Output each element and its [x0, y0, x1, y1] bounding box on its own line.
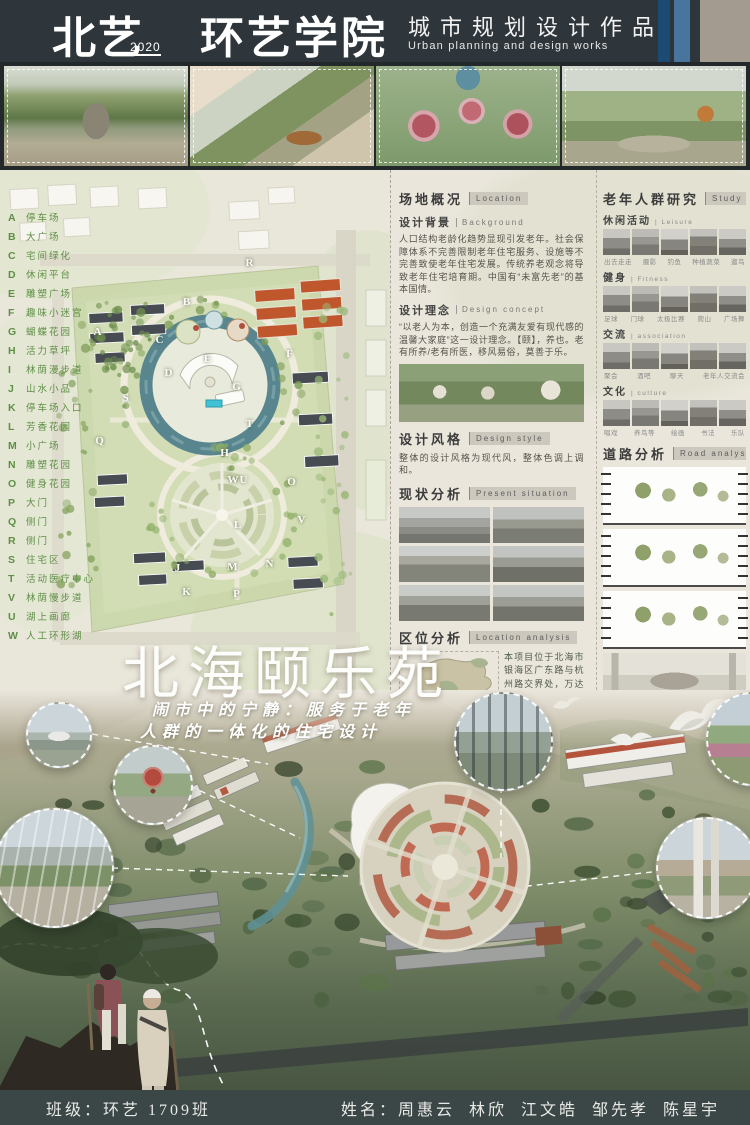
research-caption: 种植蔬菜	[692, 256, 720, 266]
legend-letter: S	[8, 554, 26, 566]
poster: 北艺 2020 环艺学院 城市规划设计作品 Urban planning and…	[0, 0, 750, 1125]
research-photo	[603, 229, 630, 255]
research-photo	[632, 229, 659, 255]
top-render-strip	[0, 62, 750, 170]
right-column: 老年人群研究 Study on the elderly 休闲活动| Leisur…	[596, 170, 748, 690]
present-photo	[493, 507, 584, 543]
legend-letter: U	[8, 611, 26, 623]
legend-item: T活动医疗中心	[8, 571, 95, 590]
project-subtitle-line2: 人群的一体化的住宅设计	[140, 718, 382, 742]
research-caption: 太极比赛	[657, 313, 685, 323]
research-photo	[690, 400, 717, 426]
research-caption: 门球	[631, 313, 645, 323]
legend-letter: W	[8, 630, 26, 642]
dimension-ticks	[601, 597, 611, 641]
research-photo-row	[603, 229, 746, 255]
research-category-header: 交流| association	[603, 326, 746, 341]
concept-text: “以老人为本，创造一个充满友爱有现代感的温馨大家庭”这一设计理念。【颐】，养也。…	[399, 321, 584, 359]
legend-item: Q侧门	[8, 514, 95, 533]
legend-label: 人工环形湖	[26, 628, 84, 642]
legend-label: 趣味小迷宫	[26, 305, 84, 319]
research-category-header: 健身| Fitness	[603, 269, 746, 284]
legend-letter: G	[8, 326, 26, 338]
render-photo-garden-path	[562, 66, 746, 166]
legend-item: U湖上画廊	[8, 609, 95, 628]
research-caption: 广场舞	[724, 313, 745, 323]
legend-letter: T	[8, 573, 26, 585]
legend-label: 休闲平台	[26, 267, 72, 281]
research-category: 健身| Fitness足球门球太极比赛爬山广场舞	[603, 269, 746, 323]
elevation-drawing	[603, 653, 746, 690]
section-title: 现状分析	[399, 484, 463, 503]
legend-label: 芳香花园	[26, 419, 72, 433]
brand-year: 2020	[130, 40, 161, 56]
research-category-title: 交流	[603, 326, 627, 341]
legend-letter: H	[8, 345, 26, 357]
research-category-subtitle: | Fitness	[631, 276, 669, 283]
legend-letter: M	[8, 440, 26, 452]
render-photo-pergola	[190, 66, 374, 166]
research-photo	[661, 229, 688, 255]
research-caption: 足球	[604, 313, 618, 323]
header-accent-bar-light	[674, 0, 690, 62]
detail-photo-circle-rooftop	[454, 692, 553, 791]
legend-item: P大门	[8, 495, 95, 514]
research-category-header: 文化| culture	[603, 383, 746, 398]
research-photo	[603, 343, 630, 369]
section-title-en: Road analysis	[673, 447, 746, 460]
section-header-road: 道路分析 Road analysis	[603, 444, 746, 463]
work-title-cn: 城市规划设计作品	[408, 10, 664, 42]
research-photo	[719, 400, 746, 426]
legend-item: C宅间绿化	[8, 248, 95, 267]
research-photo	[661, 286, 688, 312]
research-photo-row	[603, 343, 746, 369]
legend-label: 侧门	[26, 533, 49, 547]
section-header-background: 设计背景 Background	[399, 214, 584, 230]
names-label: 姓名：周惠云 林欣 江文皓 邹先孝 陈星宇	[341, 1096, 720, 1120]
elderly-lifestyle-photo	[399, 364, 584, 422]
research-categories: 休闲活动| Leisure出去走走摄影钓鱼种植蔬菜遛鸟健身| Fitness足球…	[603, 212, 746, 437]
research-category: 文化| culture唱戏养鸟等绘画书法乐队	[603, 383, 746, 437]
legend-label: 小广场	[26, 438, 61, 452]
research-photo-row	[603, 400, 746, 426]
subsection-title: 设计理念	[399, 302, 451, 318]
legend-letter: R	[8, 535, 26, 547]
legend-label: 雕塑广场	[26, 286, 72, 300]
legend-label: 林荫漫步道	[26, 362, 84, 376]
section-header-style: 设计风格 Design style	[399, 429, 584, 448]
research-caption: 摄影	[643, 256, 657, 266]
research-photo	[690, 229, 717, 255]
present-photo-grid	[399, 507, 584, 621]
dimension-ticks	[738, 535, 748, 579]
legend-letter: K	[8, 402, 26, 414]
research-photo	[603, 286, 630, 312]
middle-column: 场地概况 Location 设计背景 Background 人口结构老龄化趋势显…	[390, 170, 588, 690]
research-caption: 爬山	[698, 313, 712, 323]
research-photo	[690, 343, 717, 369]
detail-photo-circle-building	[26, 702, 92, 768]
header-taupe-block	[700, 0, 750, 62]
research-photo	[719, 229, 746, 255]
legend-letter: C	[8, 250, 26, 262]
legend-letter: N	[8, 459, 26, 471]
research-category: 休闲活动| Leisure出去走走摄影钓鱼种植蔬菜遛鸟	[603, 212, 746, 266]
research-photo-row	[603, 286, 746, 312]
research-photo	[661, 343, 688, 369]
legend-item: S住宅区	[8, 552, 95, 571]
section-header-present: 现状分析 Present situation	[399, 484, 584, 503]
render-photo-circular-gardens	[376, 66, 560, 166]
legend-item: W人工环形湖	[8, 628, 95, 647]
legend-letter: B	[8, 231, 26, 243]
footer: 班级：环艺 1709班 姓名：周惠云 林欣 江文皓 邹先孝 陈星宇	[0, 1090, 750, 1125]
legend-label: 宅间绿化	[26, 248, 72, 262]
research-caption: 聚会	[604, 370, 618, 380]
legend-letter: F	[8, 307, 26, 319]
legend-letter: L	[8, 421, 26, 433]
legend-item: B大广场	[8, 229, 95, 248]
work-title-en: Urban planning and design works	[408, 40, 608, 52]
research-caption: 乐队	[731, 427, 745, 437]
legend-item: M小广场	[8, 438, 95, 457]
legend-label: 侧门	[26, 514, 49, 528]
road-section-drawing	[603, 529, 746, 587]
section-header-concept: 设计理念 Design concept	[399, 302, 584, 318]
research-captions: 聚会酒吧聊天老年人交流会	[603, 369, 746, 380]
present-photo	[399, 585, 490, 621]
research-photo	[719, 286, 746, 312]
research-caption: 遛鸟	[731, 256, 745, 266]
research-caption: 聊天	[670, 370, 684, 380]
legend-item: F趣味小迷宫	[8, 305, 95, 324]
section-title-en: Present situation	[469, 487, 576, 500]
research-category-subtitle: | association	[631, 333, 687, 340]
research-category-title: 文化	[603, 383, 627, 398]
legend-label: 雕塑花园	[26, 457, 72, 471]
dimension-ticks	[738, 597, 748, 641]
legend-item: J山水小品	[8, 381, 95, 400]
legend-label: 健身花园	[26, 476, 72, 490]
legend-label: 山水小品	[26, 381, 72, 395]
present-photo	[493, 585, 584, 621]
subsection-title-en: Design concept	[456, 305, 545, 314]
location-text: 本项目位于北海市银海区广东路与杭州路交界处，万达广场东侧，南邻杭州路。项目周围由…	[504, 651, 584, 690]
present-photo	[493, 546, 584, 582]
legend-label: 大门	[26, 495, 49, 509]
render-photo-park-sculpture	[4, 66, 188, 166]
legend-label: 停车场	[26, 210, 61, 224]
research-category-title: 休闲活动	[603, 212, 651, 227]
section-title: 老年人群研究	[603, 189, 699, 208]
present-photo	[399, 546, 490, 582]
legend-label: 住宅区	[26, 552, 61, 566]
road-section-drawing	[603, 467, 746, 525]
legend-label: 大广场	[26, 229, 61, 243]
legend-item: N雕塑花园	[8, 457, 95, 476]
legend-item: G蝴蝶花园	[8, 324, 95, 343]
legend-label: 活力草坪	[26, 343, 72, 357]
legend-item: R侧门	[8, 533, 95, 552]
research-caption: 绘画	[671, 427, 685, 437]
legend-item: I林荫漫步道	[8, 362, 95, 381]
research-category-subtitle: | Leisure	[655, 219, 693, 226]
research-caption: 老年人交流会	[703, 370, 745, 380]
research-captions: 出去走走摄影钓鱼种植蔬菜遛鸟	[603, 255, 746, 266]
class-label: 班级：环艺 1709班	[46, 1096, 211, 1120]
background-text: 人口结构老龄化趋势显现引发老年。社会保障体系不完善限制老年住宅服务、设施等不完善…	[399, 233, 584, 296]
brand-logo: 北艺	[52, 2, 144, 66]
research-captions: 足球门球太极比赛爬山广场舞	[603, 312, 746, 323]
legend-item: A停车场	[8, 210, 95, 229]
research-caption: 唱戏	[604, 427, 618, 437]
project-title: 北海颐乐苑	[122, 628, 452, 710]
legend-item: L芳香花园	[8, 419, 95, 438]
detail-photo-circle-red-sculpture	[113, 745, 193, 825]
legend-letter: P	[8, 497, 26, 509]
legend-item: V林荫慢步道	[8, 590, 95, 609]
legend-letter: E	[8, 288, 26, 300]
legend-letter: D	[8, 269, 26, 281]
section-title-en: Location	[469, 192, 528, 205]
legend-letter: A	[8, 212, 26, 224]
research-category: 交流| association聚会酒吧聊天老年人交流会	[603, 326, 746, 380]
section-title-en: Study on the elderly	[705, 192, 746, 205]
legend-letter: J	[8, 383, 26, 395]
legend-label: 停车场入口	[26, 400, 84, 414]
research-photo	[632, 400, 659, 426]
legend-letter: V	[8, 592, 26, 604]
research-photo	[632, 286, 659, 312]
research-photo	[690, 286, 717, 312]
research-category-title: 健身	[603, 269, 627, 284]
legend-label: 林荫慢步道	[26, 590, 84, 604]
main-board: A停车场B大广场C宅间绿化D休闲平台E雕塑广场F趣味小迷宫G蝴蝶花园H活力草坪I…	[0, 170, 750, 690]
research-caption: 酒吧	[637, 370, 651, 380]
dimension-ticks	[601, 473, 611, 517]
subsection-title: 设计背景	[399, 214, 451, 230]
aerial-render-section: 闹市中的宁静：服务于老年 人群的一体化的住宅设计	[0, 690, 750, 1090]
research-caption: 出去走走	[604, 256, 632, 266]
legend-letter: I	[8, 364, 26, 376]
research-category-subtitle: | culture	[631, 390, 668, 397]
legend-letter: O	[8, 478, 26, 490]
section-title: 道路分析	[603, 444, 667, 463]
present-photo	[399, 507, 490, 543]
style-text: 整体的设计风格为现代风，整体色调上调和。	[399, 452, 584, 477]
section-title: 设计风格	[399, 429, 463, 448]
research-photo	[603, 400, 630, 426]
section-header-research: 老年人群研究 Study on the elderly	[603, 189, 746, 208]
legend-item: E雕塑广场	[8, 286, 95, 305]
legend-item: H活力草坪	[8, 343, 95, 362]
section-title-en: Design style	[469, 432, 550, 445]
plan-legend: A停车场B大广场C宅间绿化D休闲平台E雕塑广场F趣味小迷宫G蝴蝶花园H活力草坪I…	[8, 210, 95, 647]
header: 北艺 2020 环艺学院 城市规划设计作品 Urban planning and…	[0, 0, 750, 62]
legend-label: 活动医疗中心	[26, 571, 95, 585]
road-section-drawing	[603, 591, 746, 649]
research-caption: 养鸟等	[634, 427, 655, 437]
dimension-ticks	[738, 473, 748, 517]
research-caption: 钓鱼	[668, 256, 682, 266]
research-caption: 书法	[701, 427, 715, 437]
research-photo	[661, 400, 688, 426]
dimension-ticks	[601, 535, 611, 579]
legend-letter: Q	[8, 516, 26, 528]
section-header-site: 场地概况 Location	[399, 189, 584, 208]
research-category-header: 休闲活动| Leisure	[603, 212, 746, 227]
research-captions: 唱戏养鸟等绘画书法乐队	[603, 426, 746, 437]
legend-label: 蝴蝶花园	[26, 324, 72, 338]
legend-item: O健身花园	[8, 476, 95, 495]
section-title-en: Location analysis	[469, 631, 577, 644]
research-photo	[632, 343, 659, 369]
research-photo	[719, 343, 746, 369]
detail-photo-circle-entrance-gate	[656, 817, 750, 919]
legend-item: D休闲平台	[8, 267, 95, 286]
subsection-title-en: Background	[456, 218, 525, 227]
legend-label: 湖上画廊	[26, 609, 72, 623]
legend-item: K停车场入口	[8, 400, 95, 419]
aerial-render-scene	[0, 690, 750, 1090]
school-name: 环艺学院	[200, 2, 388, 66]
section-title: 场地概况	[399, 189, 463, 208]
